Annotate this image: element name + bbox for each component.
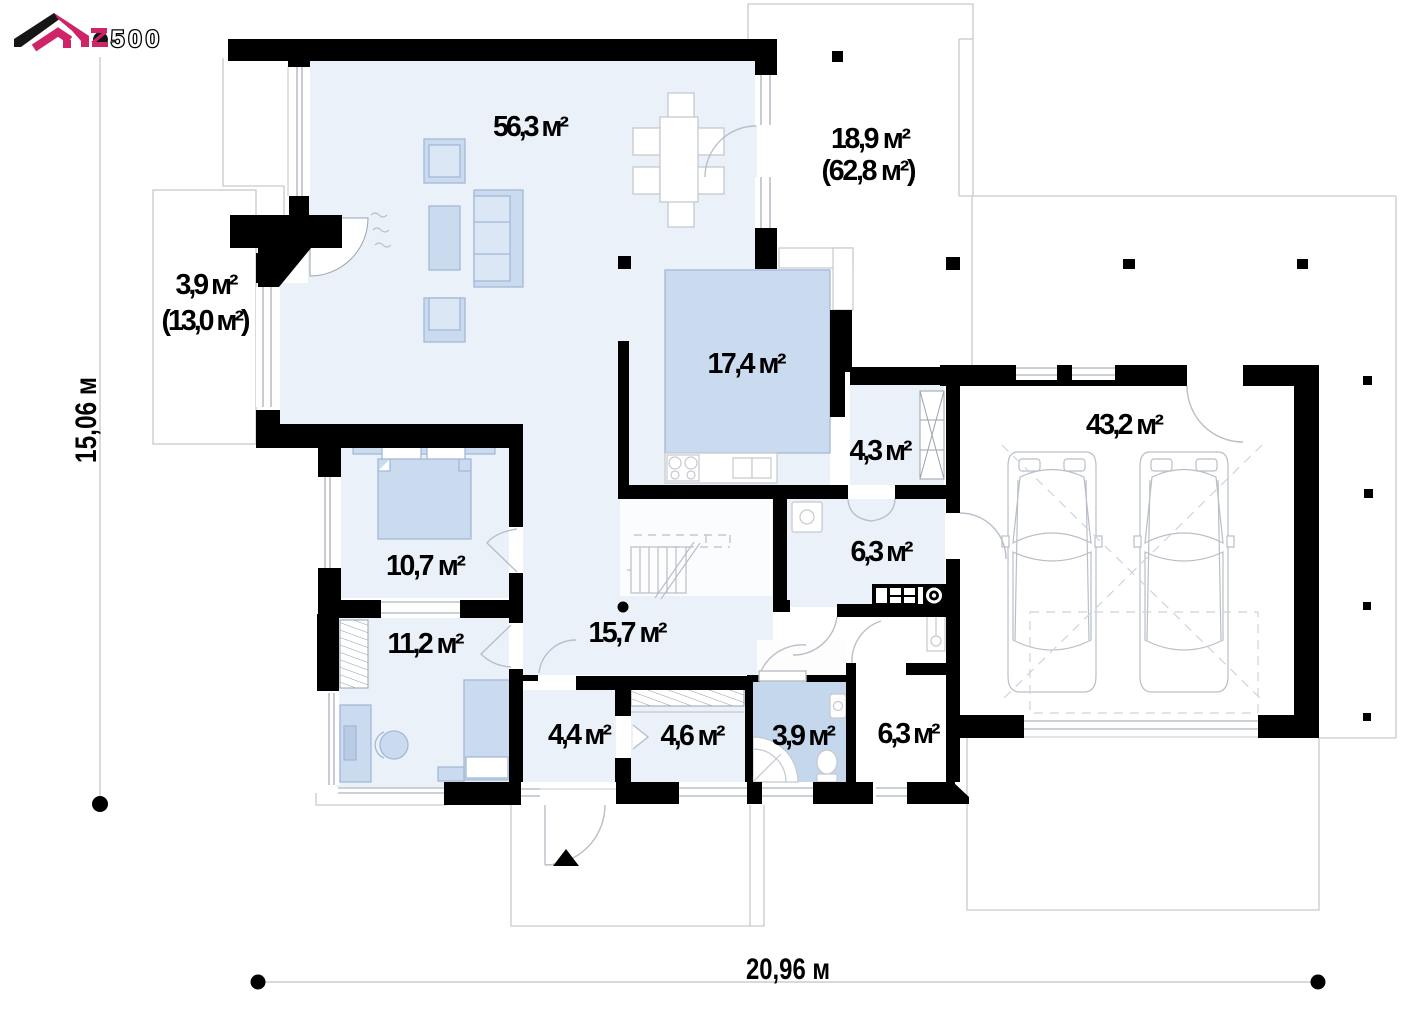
svg-text:3,9 м²: 3,9 м² bbox=[772, 720, 836, 752]
svg-text:3,9 м²: 3,9 м² bbox=[176, 269, 239, 301]
svg-text:(13,0 м²): (13,0 м²) bbox=[162, 305, 251, 337]
svg-text:500: 500 bbox=[111, 26, 163, 53]
svg-text:4,4 м²: 4,4 м² bbox=[548, 719, 612, 751]
svg-text:(62,8 м²): (62,8 м²) bbox=[822, 155, 917, 187]
svg-text:18,9 м²: 18,9 м² bbox=[831, 123, 911, 155]
svg-text:43,2 м²: 43,2 м² bbox=[1086, 409, 1164, 441]
svg-text:56,3 м²: 56,3 м² bbox=[493, 111, 569, 143]
svg-text:4,3 м²: 4,3 м² bbox=[850, 435, 913, 467]
svg-text:15,7 м²: 15,7 м² bbox=[589, 617, 668, 649]
svg-text:6,3 м²: 6,3 м² bbox=[878, 718, 941, 750]
svg-text:15,06 м: 15,06 м bbox=[70, 377, 103, 463]
svg-text:6,3 м²: 6,3 м² bbox=[851, 536, 914, 568]
svg-text:11,2 м²: 11,2 м² bbox=[388, 628, 465, 660]
svg-text:17,4 м²: 17,4 м² bbox=[708, 348, 787, 380]
svg-text:4,6 м²: 4,6 м² bbox=[661, 720, 726, 752]
svg-text:20,96 м: 20,96 м bbox=[746, 953, 830, 986]
svg-text:10,7 м²: 10,7 м² bbox=[386, 550, 466, 582]
